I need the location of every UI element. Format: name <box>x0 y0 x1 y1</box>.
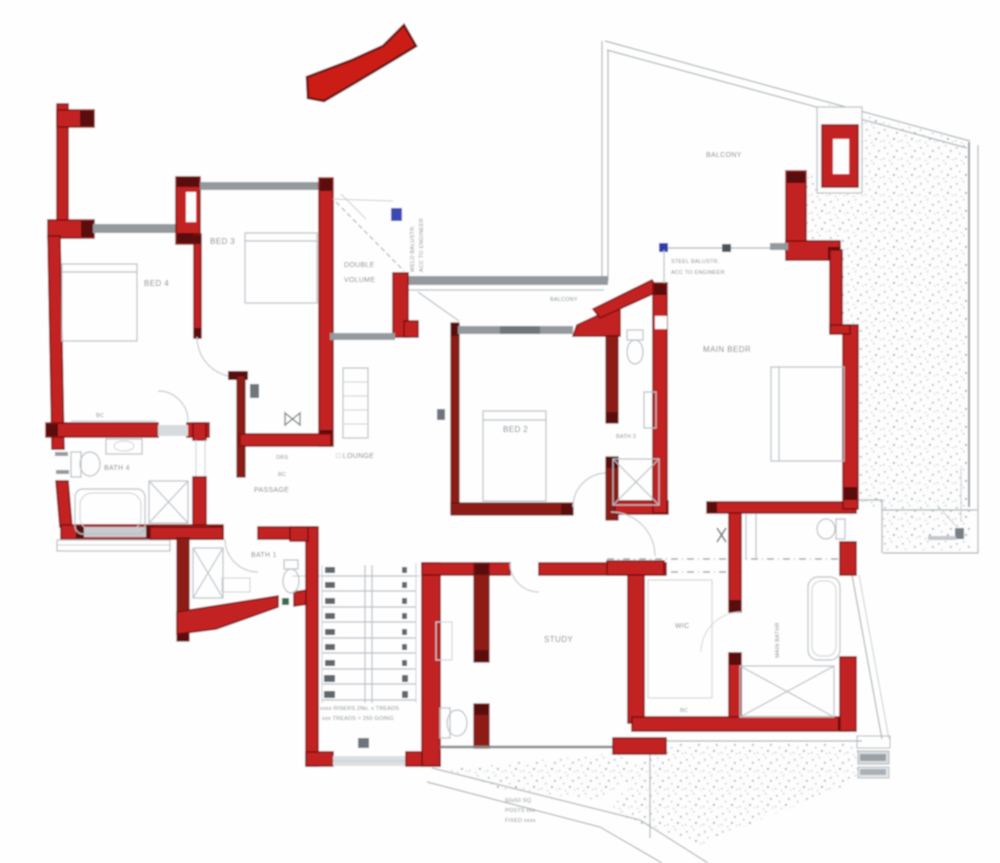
svg-text:BATH 3: BATH 3 <box>616 434 636 440</box>
svg-text:BATH 4: BATH 4 <box>104 465 130 472</box>
svg-text:BED 4: BED 4 <box>144 279 169 288</box>
svg-text:BC: BC <box>96 413 104 419</box>
svg-text:BALCONY: BALCONY <box>550 297 578 303</box>
svg-text:STEEL BALUSTR.: STEEL BALUSTR. <box>671 259 720 265</box>
svg-text:BED 3: BED 3 <box>210 237 235 246</box>
svg-text:MAIN BATHR: MAIN BATHR <box>775 622 781 658</box>
svg-text:xxxx RISERS 2No. x TREADS: xxxx RISERS 2No. x TREADS <box>320 706 399 712</box>
svg-text:DOUBLE: DOUBLE <box>344 262 375 269</box>
svg-text:FIXED xxxx: FIXED xxxx <box>505 818 536 824</box>
svg-text:MAIN BEDR: MAIN BEDR <box>703 345 751 354</box>
svg-text:STUDY: STUDY <box>544 635 573 644</box>
svg-text:WELD BALUSTR.: WELD BALUSTR. <box>410 225 416 272</box>
svg-text:DRS: DRS <box>276 455 288 461</box>
svg-text:□ LOUNGE: □ LOUNGE <box>336 453 374 460</box>
svg-text:ACC TO ENGINEER: ACC TO ENGINEER <box>671 270 725 276</box>
svg-text:BED 2: BED 2 <box>503 425 528 434</box>
svg-text:50x50 SQ.: 50x50 SQ. <box>505 798 533 804</box>
svg-text:POSTS xxx: POSTS xxx <box>505 808 535 814</box>
svg-text:ACC TO ENGINEER: ACC TO ENGINEER <box>419 218 425 272</box>
svg-text:VOLUME: VOLUME <box>344 277 375 284</box>
svg-text:BC: BC <box>680 708 688 714</box>
svg-text:PASSAGE: PASSAGE <box>254 487 289 494</box>
svg-text:BATH 1: BATH 1 <box>251 552 277 559</box>
svg-text:xxx TREADS = 250 GOING: xxx TREADS = 250 GOING <box>322 716 394 722</box>
svg-text:WIC: WIC <box>675 623 690 630</box>
svg-text:BALCONY: BALCONY <box>706 152 742 159</box>
svg-text:BC: BC <box>278 472 286 478</box>
